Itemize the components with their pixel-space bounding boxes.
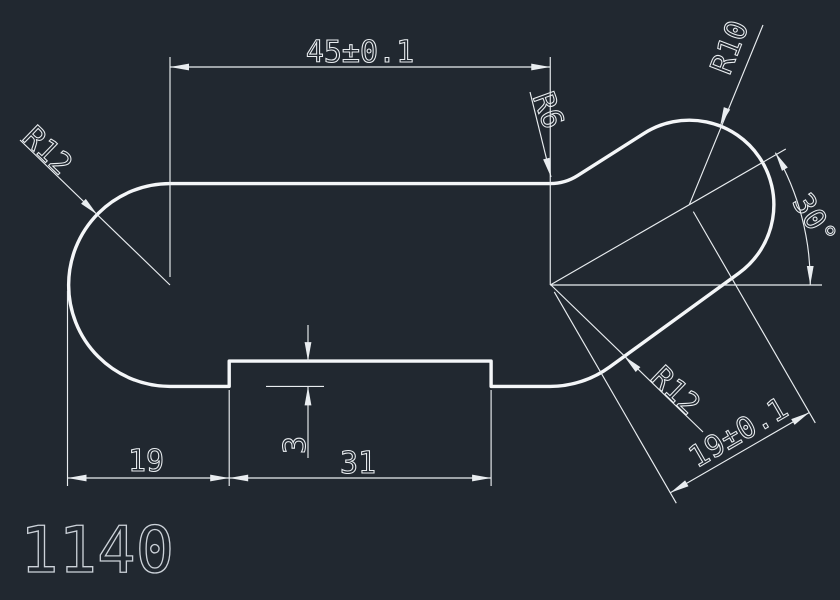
label-overall-length: 45±0.1 bbox=[306, 35, 414, 70]
label-recess-depth: 3 bbox=[278, 436, 313, 454]
cad-viewport: 45±0.1 R12 R6 R10 30° R12 19±0.1 19 31 3… bbox=[0, 0, 840, 600]
technical-drawing: 45±0.1 R12 R6 R10 30° R12 19±0.1 19 31 3… bbox=[0, 0, 840, 600]
part-number: 1140 bbox=[20, 514, 174, 588]
label-left-offset: 19 bbox=[128, 444, 164, 479]
canvas-background bbox=[0, 0, 840, 600]
label-recess-width: 31 bbox=[340, 446, 376, 481]
